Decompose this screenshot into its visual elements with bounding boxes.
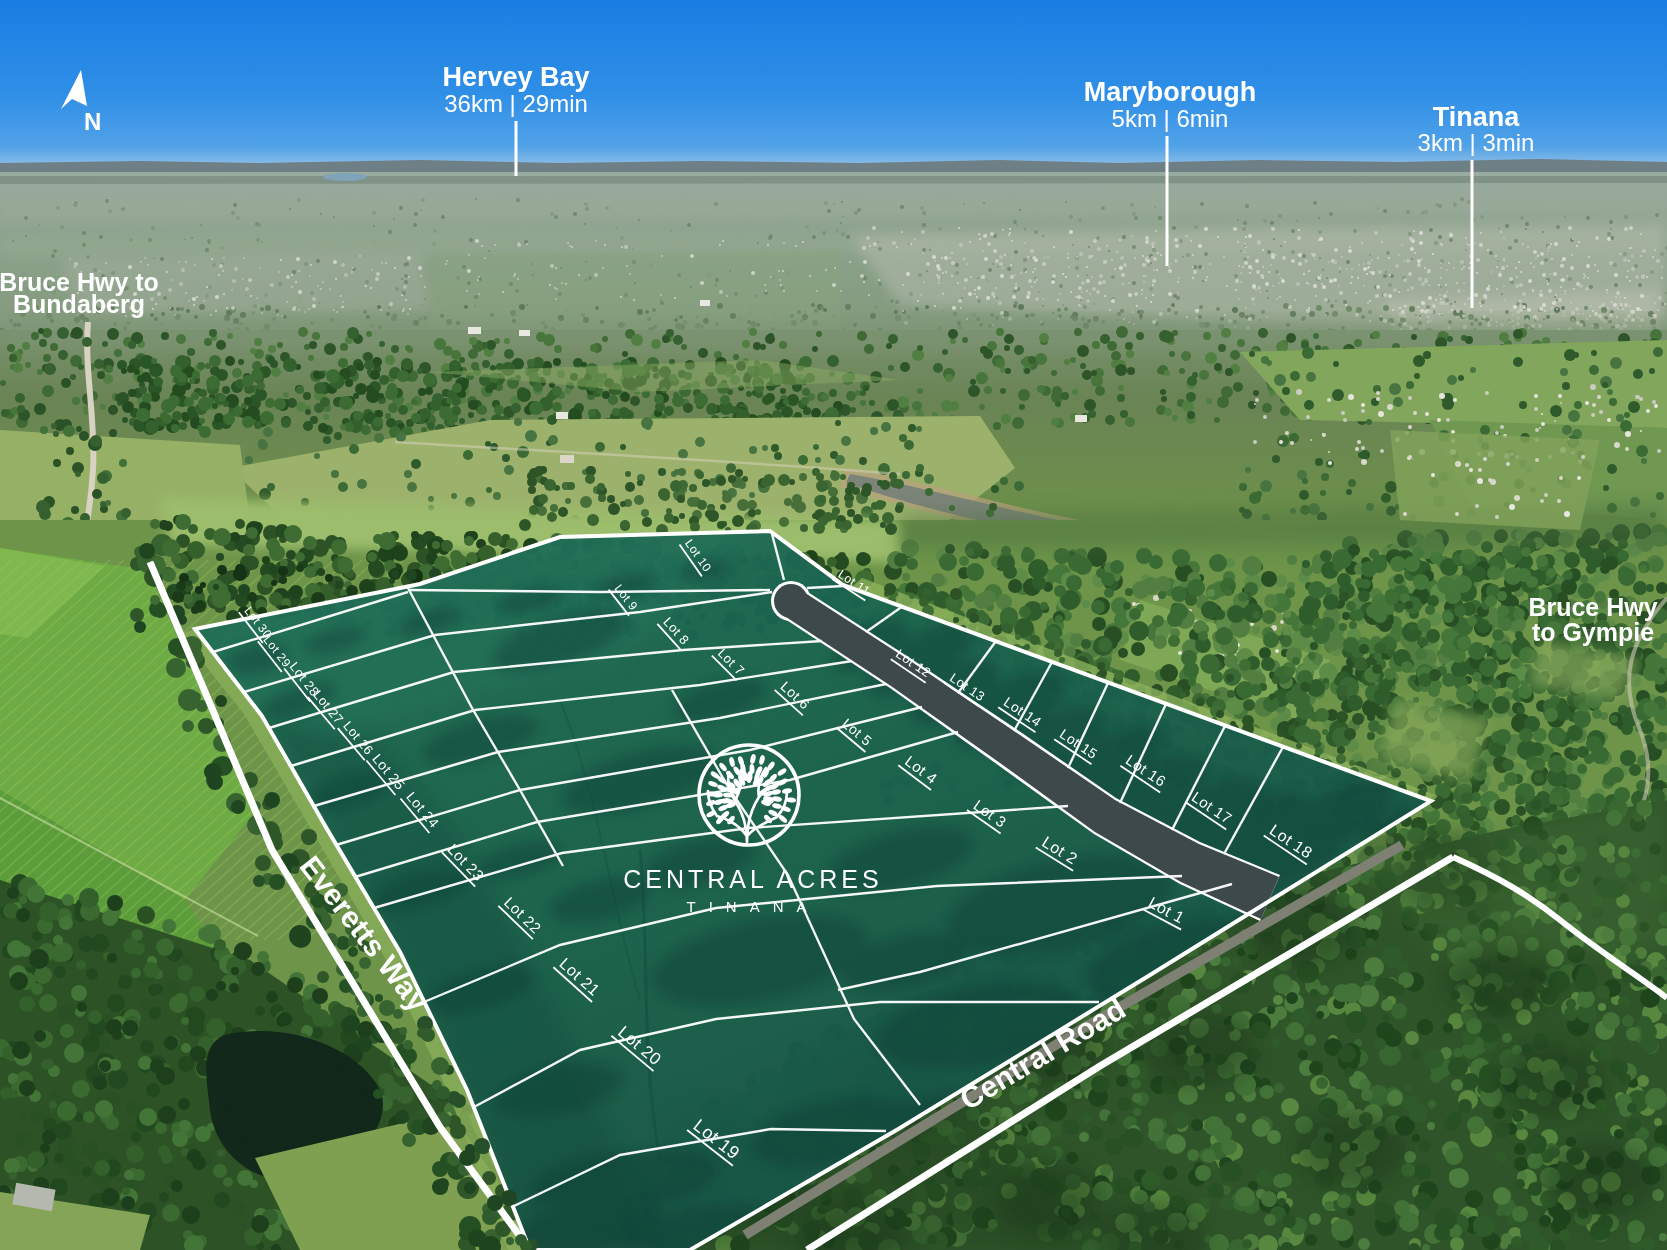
svg-text:Bundaberg: Bundaberg — [13, 290, 145, 318]
svg-text:Maryborough: Maryborough — [1084, 77, 1257, 107]
svg-text:5km | 6min: 5km | 6min — [1112, 105, 1229, 132]
svg-text:CENTRAL ACRES: CENTRAL ACRES — [623, 865, 882, 893]
svg-text:N: N — [84, 108, 101, 135]
svg-text:to Gympie: to Gympie — [1532, 618, 1654, 646]
svg-text:36km | 29min: 36km | 29min — [444, 90, 588, 117]
svg-text:Hervey Bay: Hervey Bay — [442, 62, 589, 92]
svg-text:TINANA: TINANA — [686, 898, 819, 915]
svg-text:Bruce Hwy: Bruce Hwy — [1528, 593, 1657, 621]
svg-text:Tinana: Tinana — [1433, 102, 1521, 132]
svg-text:3km | 3min: 3km | 3min — [1418, 129, 1535, 156]
